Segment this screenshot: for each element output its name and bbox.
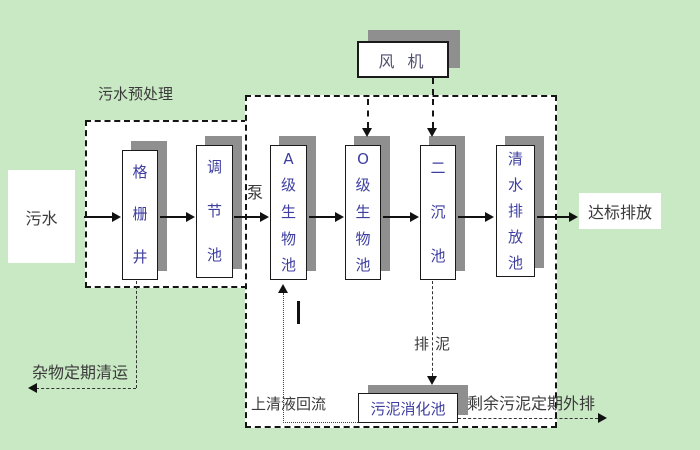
sludge-drain-arrowhead	[427, 376, 437, 385]
air-arrowhead-tank-o	[362, 128, 372, 137]
tick-mark	[297, 301, 300, 324]
tank-o-box: O级生物池	[345, 145, 381, 280]
supernatant-hline	[283, 422, 358, 423]
flow-arrow-tank-a	[309, 216, 336, 218]
supernatant-arrowhead	[278, 284, 288, 293]
flow-arrow-influent	[84, 216, 113, 218]
flow-arrowhead-influent	[112, 212, 121, 222]
flow-arrowhead-discharge	[569, 212, 578, 222]
sludge-drain-line	[432, 281, 433, 376]
grid-well-box: 格栅井	[122, 150, 158, 280]
regulating-tank-label: 调节池	[197, 146, 232, 277]
excess-sludge-line	[458, 418, 598, 419]
debris-vline	[136, 281, 137, 388]
grid-well-label: 格栅井	[123, 151, 157, 279]
excess-sludge-label: 剩余污泥定期外排	[467, 395, 595, 413]
debris-label: 杂物定期清运	[32, 364, 128, 382]
blower-box: 风 机	[357, 41, 449, 78]
influent-label: 污水	[25, 205, 57, 229]
clearwater-tank-box: 清水排放池	[496, 145, 535, 277]
clearwater-tank-label: 清水排放池	[497, 146, 534, 276]
secondary-tank-label: 二沉池	[421, 146, 455, 279]
flow-arrowhead-tank-o	[410, 212, 419, 222]
blower-drop-line	[432, 78, 434, 95]
supernatant-label: 上清液回流	[251, 396, 326, 413]
influent-label-box: 污水	[8, 170, 75, 263]
flow-arrow-secondary	[458, 216, 486, 218]
discharge-label: 达标排放	[588, 199, 652, 223]
pump-label: 泵	[247, 184, 263, 202]
flow-arrowhead-regulating	[260, 212, 269, 222]
flow-arrowhead-secondary	[485, 212, 494, 222]
debris-hline	[36, 388, 136, 389]
excess-sludge-arrowhead	[598, 413, 607, 423]
digester-box: 污泥消化池	[358, 393, 458, 423]
flow-arrow-regulating	[234, 216, 261, 218]
flow-arrowhead-tank-a	[335, 212, 344, 222]
tank-a-box: A级生物池	[270, 145, 307, 280]
air-line-tank-o	[367, 99, 369, 128]
digester-label: 污泥消化池	[370, 398, 445, 419]
secondary-tank-box: 二沉池	[420, 145, 456, 280]
discharge-label-box: 达标排放	[579, 193, 661, 229]
air-arrowhead-secondary	[427, 128, 437, 137]
blower-label: 风 机	[378, 48, 427, 72]
regulating-tank-box: 调节池	[196, 145, 233, 278]
flow-arrow-tank-o	[383, 216, 411, 218]
flow-diagram: 污水预处理 污水 达标排放 风 机 格栅井 调节池 A级生物池 O级生物池 二沉…	[0, 0, 700, 450]
flow-arrow-gridwell	[160, 216, 187, 218]
debris-arrowhead	[28, 383, 37, 393]
tank-a-label: A级生物池	[271, 146, 306, 279]
air-line-secondary	[432, 99, 434, 128]
flow-arrowhead-gridwell	[186, 212, 195, 222]
pretreatment-title: 污水预处理	[98, 86, 173, 103]
tank-o-label: O级生物池	[346, 146, 380, 279]
sludge-drain-label: 排泥	[414, 336, 456, 353]
flow-arrow-discharge	[537, 216, 570, 218]
